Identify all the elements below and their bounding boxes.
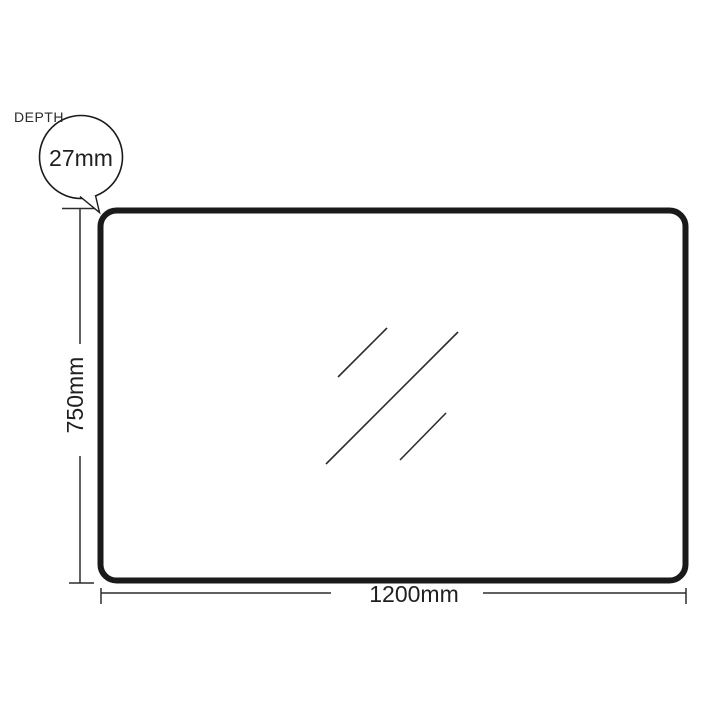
diagram-svg: 750mm 1200mm 27mm DEPTH <box>0 0 720 720</box>
depth-callout-pointer <box>80 196 100 213</box>
depth-value: 27mm <box>49 145 113 171</box>
mirror-frame <box>101 211 686 581</box>
width-dimension-value: 1200mm <box>369 581 458 607</box>
depth-label: DEPTH <box>14 109 64 125</box>
height-dimension-value: 750mm <box>62 357 88 434</box>
mirror-dimension-diagram: 750mm 1200mm 27mm DEPTH <box>0 0 720 720</box>
